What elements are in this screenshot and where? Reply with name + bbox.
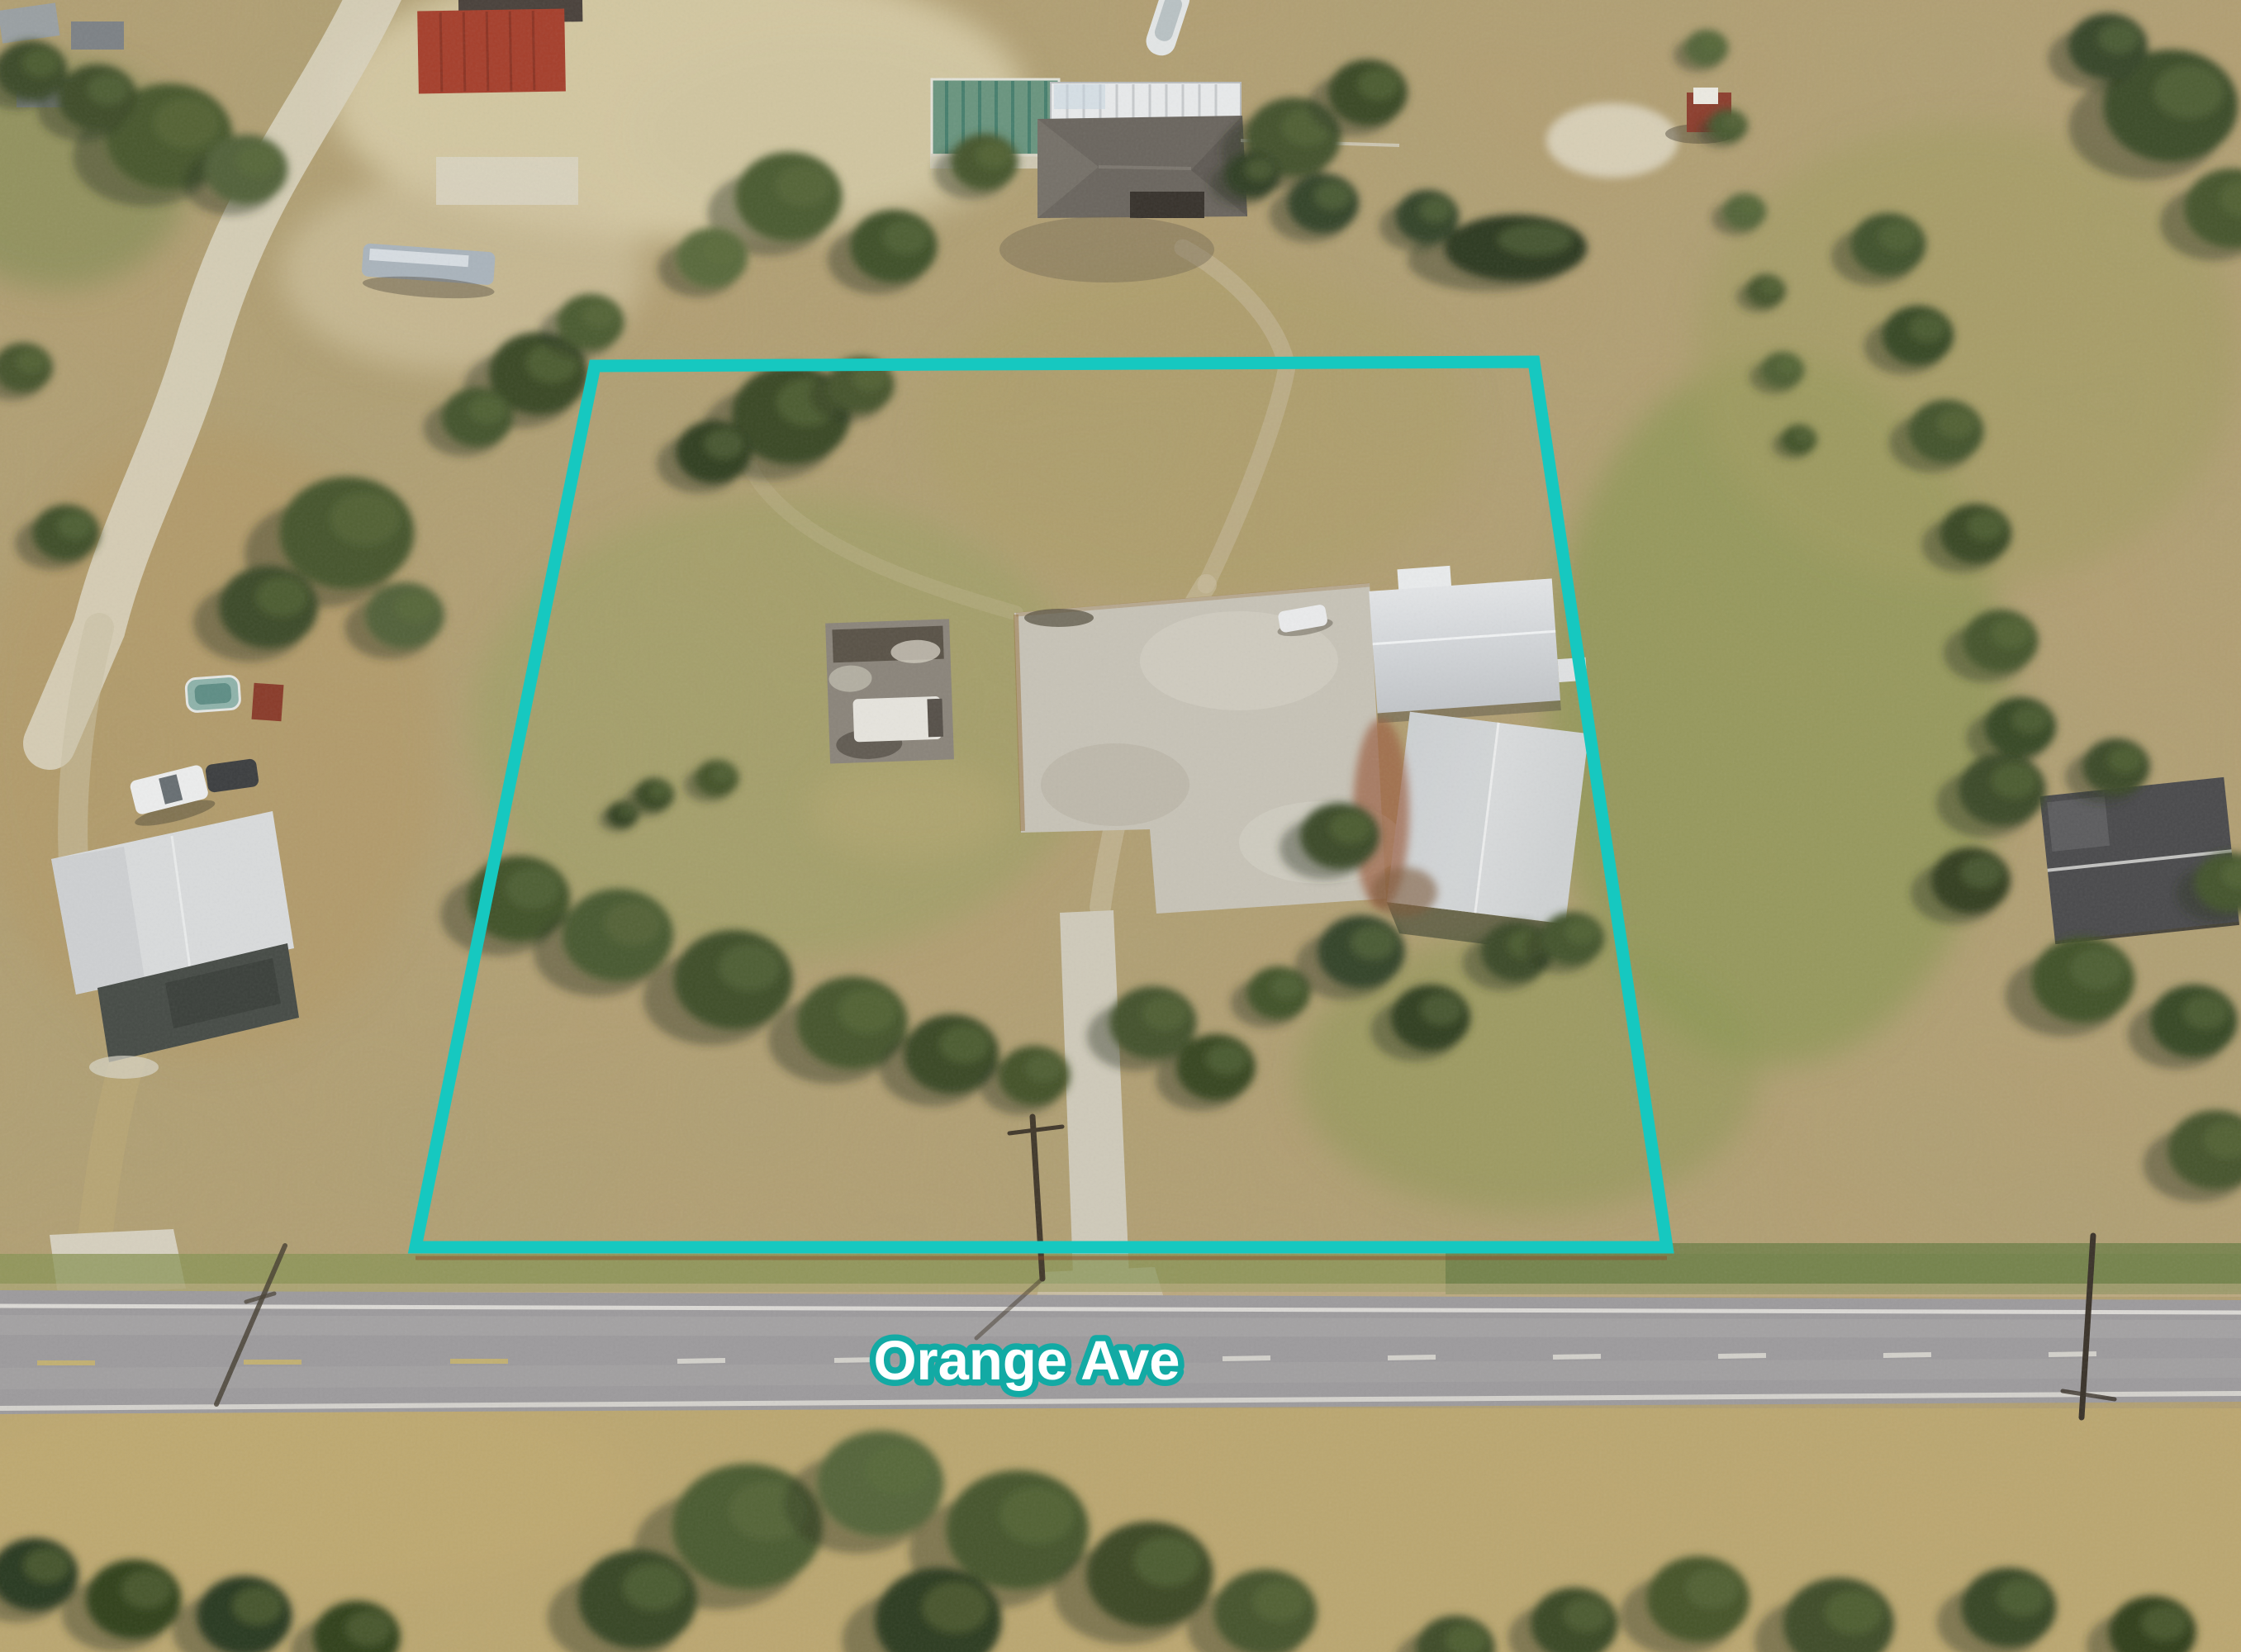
photo-grain <box>0 0 2241 1652</box>
street-label: Orange Ave <box>873 1330 1180 1392</box>
aerial-map: Orange Ave <box>0 0 2241 1652</box>
satellite-scene: Orange Ave <box>0 0 2241 1652</box>
street-label-group: Orange Ave <box>873 1330 1180 1392</box>
